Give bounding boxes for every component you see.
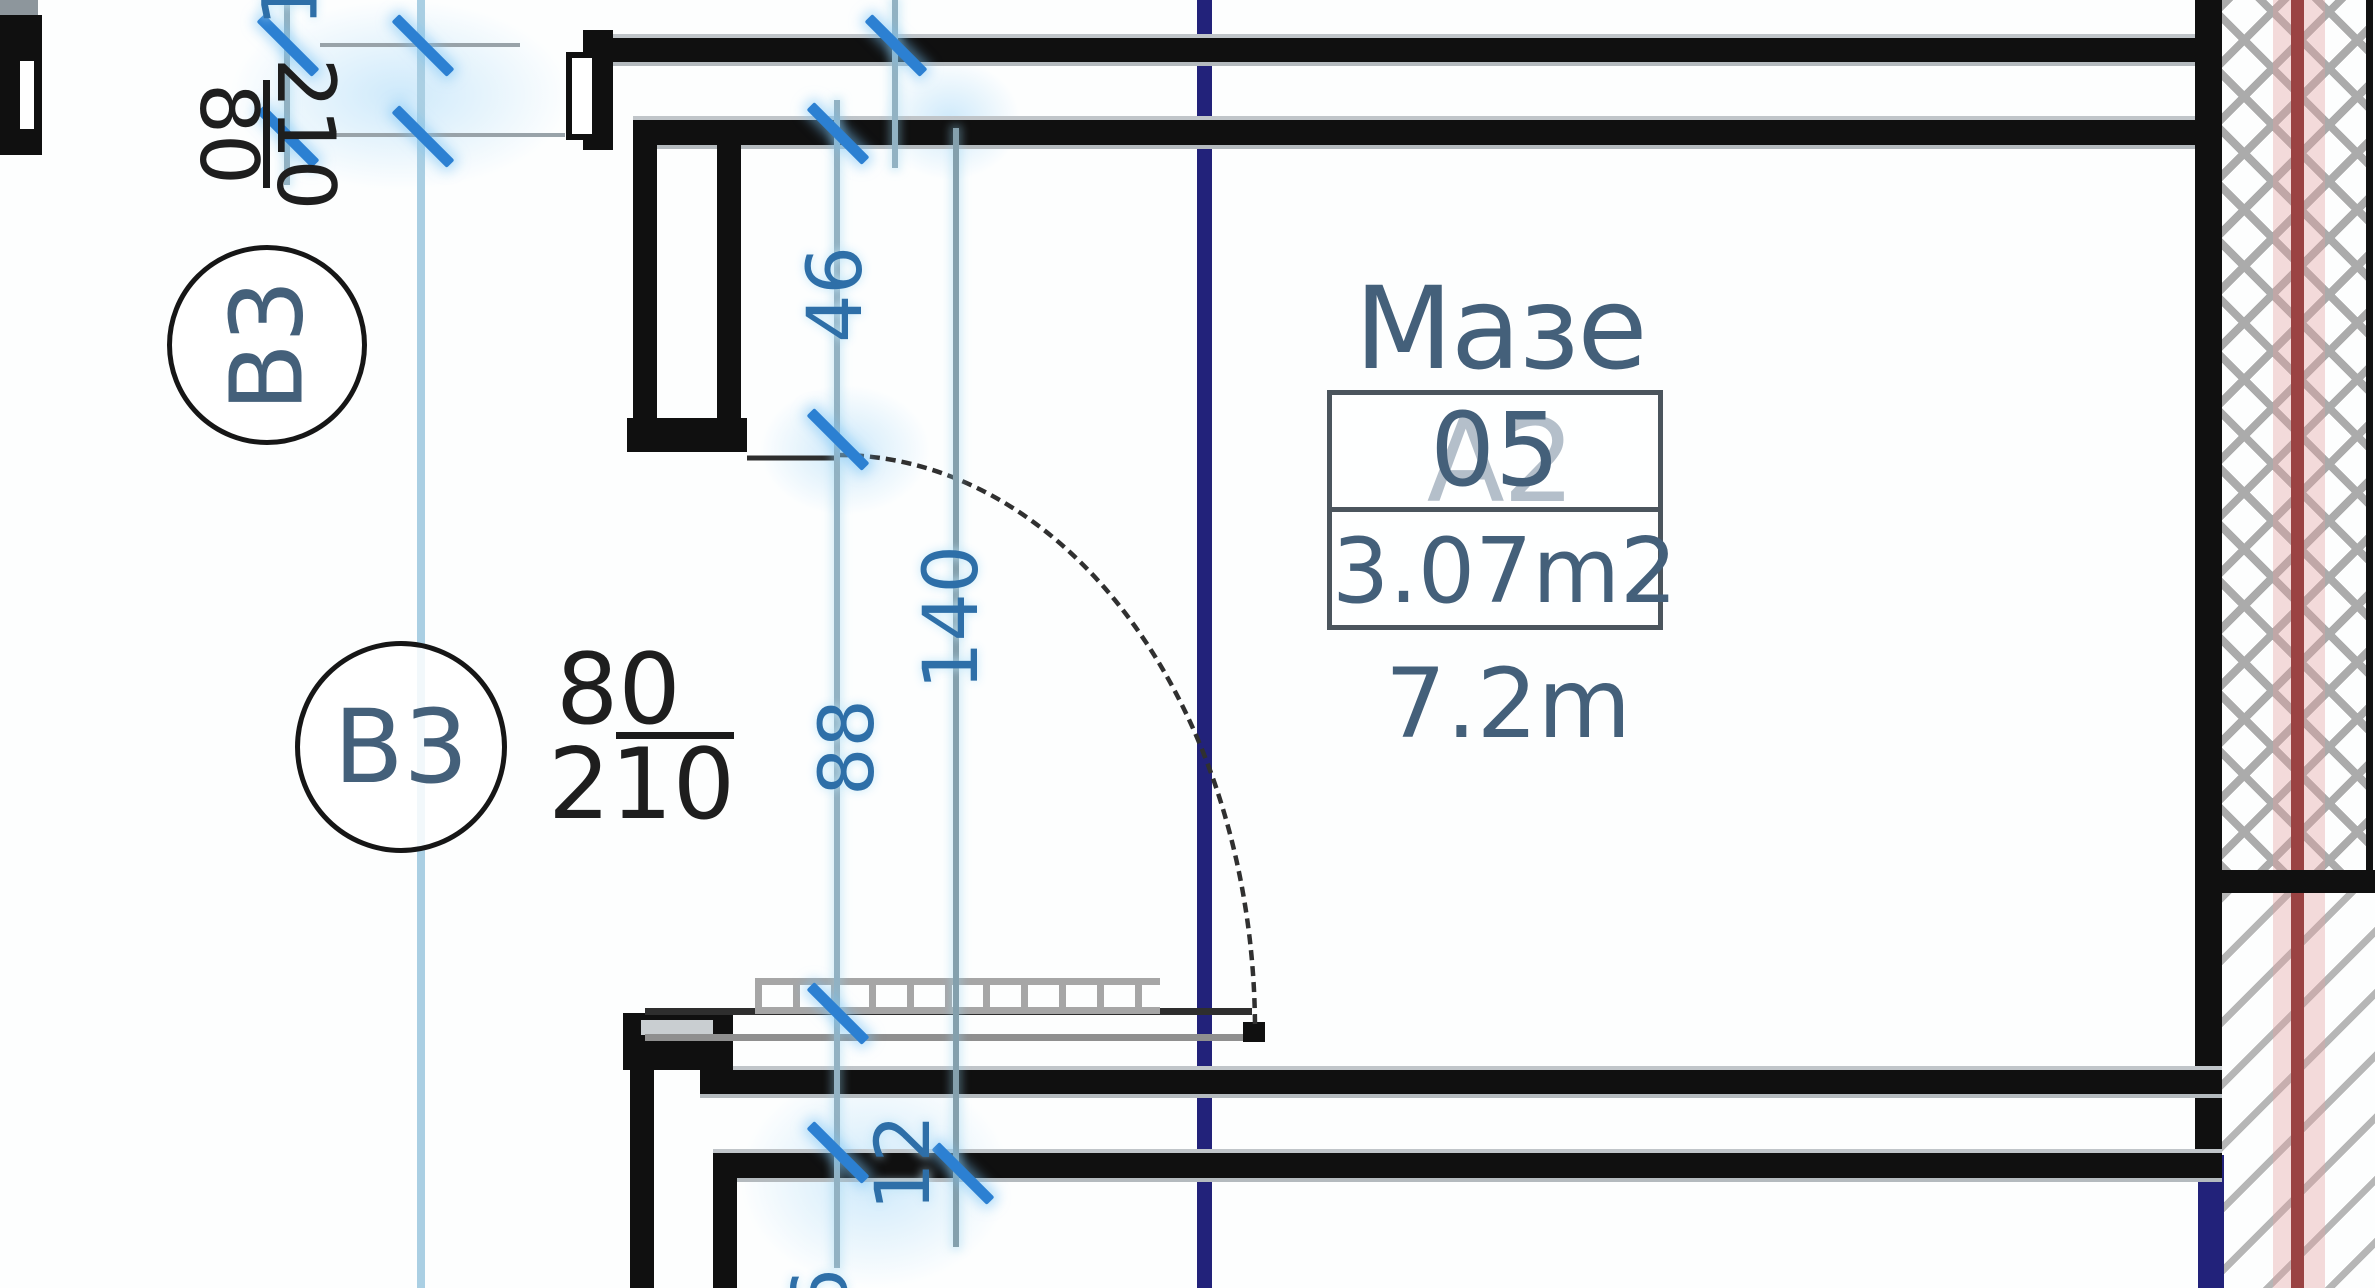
dimension-text-12: 12 xyxy=(858,1114,947,1211)
door-size-label: 80 210 xyxy=(548,648,748,831)
door-tag-code: B3 xyxy=(334,688,469,807)
dimension-text-88: 88 xyxy=(802,699,891,796)
dimension-text-cut: 1 xyxy=(246,0,335,27)
door-width-value: 80 xyxy=(548,648,748,732)
dimension-text-46: 46 xyxy=(790,246,879,343)
extension-line xyxy=(320,133,565,137)
door-tag-circle-1: B3 xyxy=(167,245,367,445)
room-number: 05 xyxy=(1332,397,1658,505)
door-height-value: 210 xyxy=(548,739,748,831)
dimension-text-6: 6 xyxy=(776,1268,865,1288)
door-tag-circle-2: B3 xyxy=(295,641,507,853)
door-size-label-rotated: 210 80 xyxy=(192,46,342,222)
door-tag-code: B3 xyxy=(208,279,325,411)
door-width-value: 80 xyxy=(196,83,262,185)
dimension-text-140: 140 xyxy=(906,545,995,690)
door-swing-arc xyxy=(0,0,2375,1288)
dim-line-top-b xyxy=(892,0,898,168)
room-area: 3.07m2 xyxy=(1332,517,1658,625)
room-perimeter: 7.2m xyxy=(1385,648,1605,760)
room-info-box: 05 3.07m2 xyxy=(1327,390,1663,630)
floorplan-canvas: 1 46 88 140 12 6 B3 210 80 B3 80 210 Маз… xyxy=(0,0,2375,1288)
door-height-value: 210 xyxy=(273,58,339,211)
